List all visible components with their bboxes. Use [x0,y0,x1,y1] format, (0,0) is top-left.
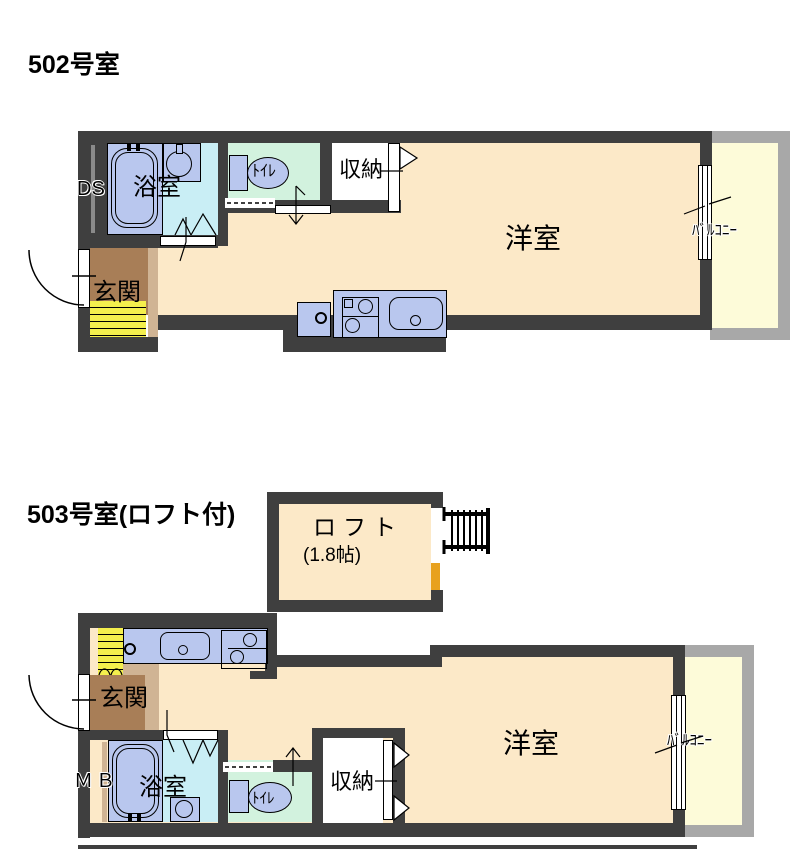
wall [218,143,228,246]
label-storage: 収納 [330,771,374,793]
wall [393,728,405,823]
toilet-door-opening [225,198,275,208]
washbasin-icon [175,800,193,818]
faucet-icon [315,312,327,324]
bathtub-faucet-icon [128,814,132,822]
wall [218,730,228,823]
label-bathroom: 浴室 [139,776,187,800]
stairs-503-icon [98,628,123,675]
stairs-502-icon [90,301,146,337]
bathtub-faucet-icon [136,143,140,151]
label-toilet: ﾄｲﾚ [252,164,276,180]
window-pane-line [702,166,703,259]
bathroom-door [160,236,216,246]
wall [78,131,90,352]
wall [78,131,712,143]
window-pane-line [681,696,682,809]
label-entrance: 玄関 [100,687,148,711]
burner-icon [358,299,373,314]
balcony-window [671,695,686,810]
label-western-room: 洋室 [503,730,559,758]
sink-drain-icon [178,645,188,655]
balcony-window [698,165,712,260]
plan-502-title: 502号室 [28,53,120,78]
burner-icon [230,650,244,664]
label-toilet: ﾄｲﾚ [252,791,275,806]
wall [90,730,163,740]
wall [158,315,285,330]
bathtub-faucet-icon [127,143,131,151]
wall [446,315,712,330]
entrance-door-leaf [78,249,90,308]
ladder-icon [443,507,489,554]
balcony-503-wall-right [742,645,754,837]
wall [78,823,685,837]
wall [277,655,442,667]
label-storage: 収納 [339,159,383,181]
balcony-503-wall-bottom [685,825,750,837]
toilet-tank-icon [229,155,248,191]
bathtub-faucet-icon [137,814,141,822]
wall [431,590,443,612]
wall [312,728,405,738]
wall [267,492,443,504]
wall [78,337,158,352]
label-loft: ロフト [313,516,403,539]
toilet-door-leaf [275,205,331,214]
toilet-door-opening [223,762,273,772]
label-duct-space: DS [77,179,105,199]
label-bathroom: 浴室 [133,176,181,200]
entrance-door-arc [29,250,84,305]
wall [431,492,443,508]
entrance-door-arc [29,675,84,729]
burner-icon [243,633,257,647]
entrance-door-leaf [78,674,90,731]
stove-divider [228,648,266,649]
entrance-502-step-strip [148,248,158,337]
wall [267,600,443,612]
stove-detail [344,299,353,308]
label-entrance: 玄関 [93,281,141,305]
balcony-502-wall-right [778,131,790,340]
label-balcony: ﾊﾞﾙｺﾆｰ [667,733,712,748]
window-pane-line [676,696,677,809]
washbasin-tap-icon [176,144,183,154]
label-meter-box: ＭＢ [74,772,118,791]
faucet-icon [124,643,136,655]
label-balcony: ﾊﾞﾙｺﾆｰ [692,223,737,238]
window-pane-line [707,166,708,259]
wall [267,492,279,612]
label-loft-area: (1.8帖) [303,546,361,565]
closet-door [388,143,400,212]
loft-edge-bar [431,563,440,590]
toilet-tank-icon [229,780,249,813]
floorplan-page: 502号室 [0,0,806,849]
plan-503-title: 503号室(ロフト付) [27,503,235,528]
wall [430,645,442,667]
wall [312,738,323,823]
wall [250,671,277,679]
wall [442,645,685,657]
stove-divider [343,316,378,317]
balcony-502-wall-bottom [710,328,790,340]
label-western-room: 洋室 [505,225,561,253]
entrance-503-step-strip [123,663,159,675]
sink-drain-icon [410,315,421,326]
wall [78,613,277,628]
balcony-503-wall-top [685,645,750,657]
wall [78,845,697,849]
bathroom-door [163,730,218,740]
burner-icon [345,318,360,333]
closet-door [383,740,393,820]
